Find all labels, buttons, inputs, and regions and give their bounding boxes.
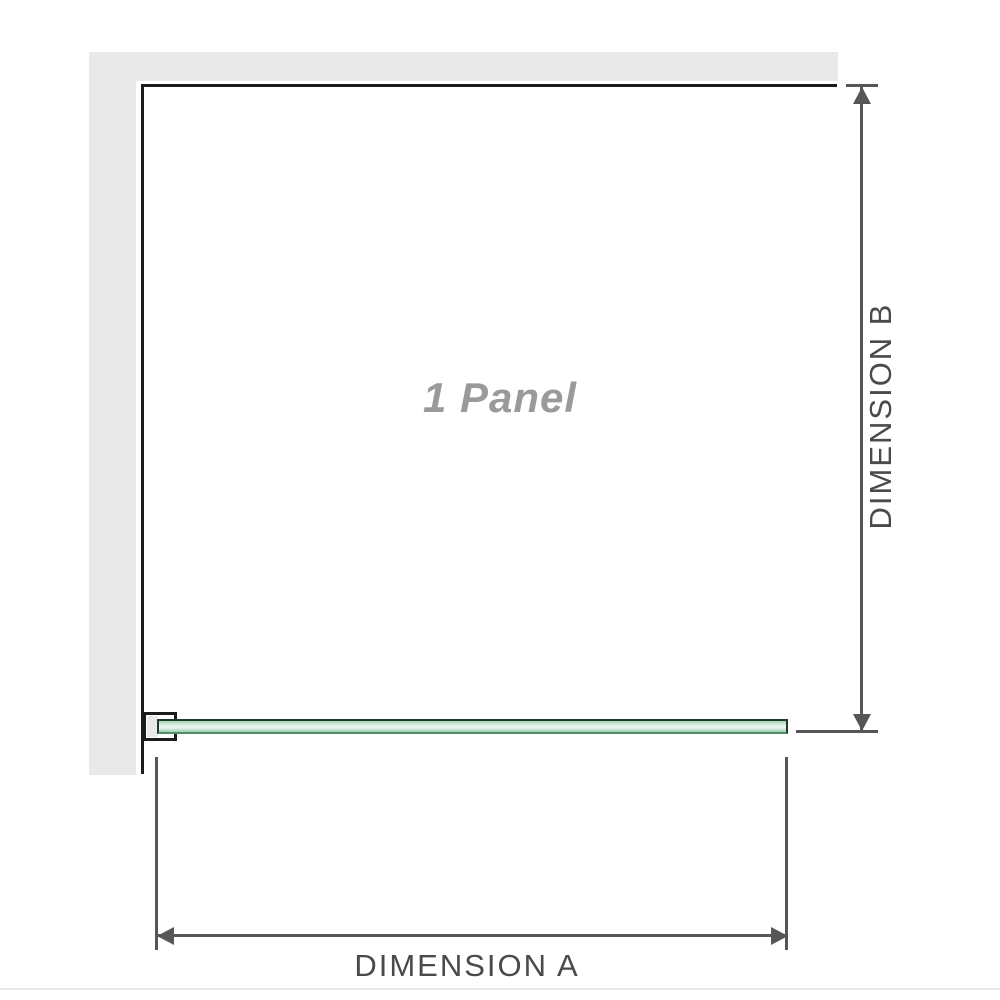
- dimension-a-right-extension: [785, 757, 788, 950]
- dimension-a-label: DIMENSION A: [317, 946, 617, 986]
- panel-dimension-diagram: 1 Panel DIMENSION B DIMENSION A: [0, 0, 1000, 1000]
- panel-count-label: 1 Panel: [330, 372, 670, 424]
- dimension-b-label: DIMENSION B: [861, 266, 901, 566]
- glass-panel: [157, 719, 788, 734]
- bottom-hairline: [0, 988, 1000, 990]
- arrow-left-icon: [157, 927, 174, 945]
- dimension-a-left-extension: [155, 757, 158, 950]
- arrow-down-icon: [853, 714, 871, 731]
- wall-top: [89, 52, 838, 81]
- dimension-a-line: [157, 934, 788, 937]
- wall-left: [89, 52, 136, 775]
- arrow-right-icon: [771, 927, 788, 945]
- arrow-up-icon: [853, 87, 871, 104]
- enclosure-top-border: [141, 84, 837, 87]
- enclosure-left-border: [141, 84, 144, 774]
